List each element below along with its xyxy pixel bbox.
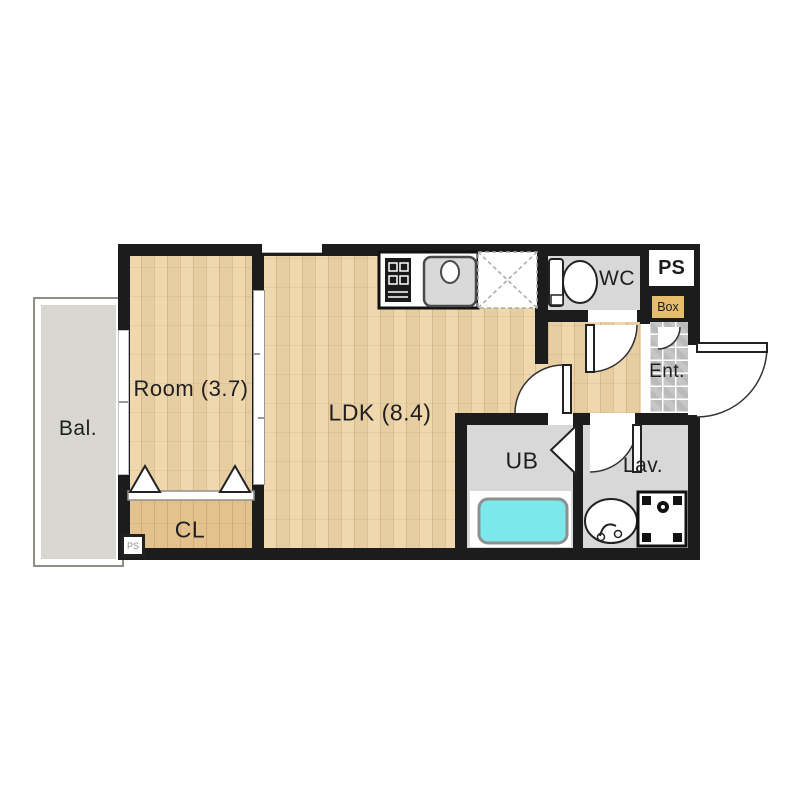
folding-door-icon	[130, 466, 160, 492]
folding-door-icon	[220, 466, 250, 492]
bathtub-icon	[479, 499, 567, 543]
entrance-label: Ent.	[649, 361, 685, 383]
washing-machine-pan-icon	[638, 492, 686, 546]
unit-bath-label: UB	[506, 448, 539, 475]
toilet-icon	[549, 259, 597, 306]
closet-door-triangles-icon	[128, 466, 254, 500]
wc-door-swing-icon	[586, 325, 637, 372]
kitchen-counter	[379, 252, 478, 308]
wc-label: WC	[599, 267, 635, 291]
entrance-storage-door-icon	[658, 327, 680, 349]
kitchen-faucet-icon	[441, 261, 459, 283]
floor-plan: PS Box PS	[0, 0, 800, 800]
refrigerator-space-icon	[478, 252, 537, 308]
front-door-swing-icon	[697, 343, 767, 417]
balcony-label: Bal.	[59, 417, 97, 441]
ldk-door-swing-icon	[515, 365, 571, 413]
bedroom-label: Room (3.7)	[133, 376, 248, 402]
front-door-leaf	[697, 343, 767, 352]
closet-label: CL	[175, 517, 205, 544]
lavatory-label: Lav.	[623, 454, 663, 478]
ldk-label: LDK (8.4)	[329, 400, 432, 427]
lavatory-sink-icon	[585, 499, 637, 543]
ub-folding-door-icon	[551, 426, 576, 474]
